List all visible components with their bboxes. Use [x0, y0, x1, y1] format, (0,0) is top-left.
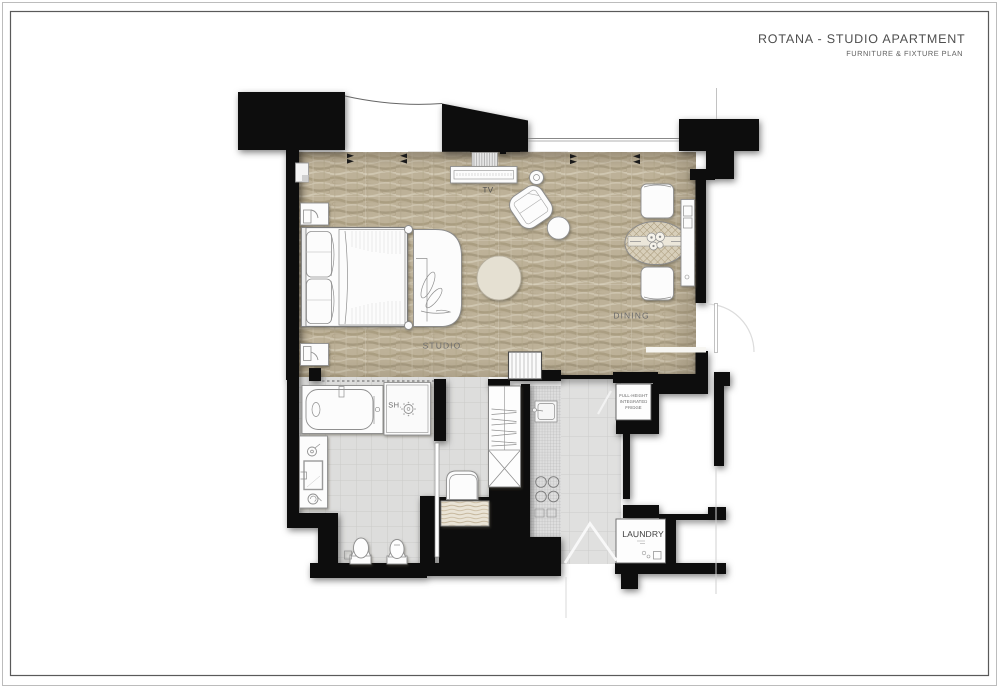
- svg-text:DINING: DINING: [613, 311, 649, 321]
- svg-text:SH.: SH.: [388, 401, 401, 410]
- svg-text:TV: TV: [482, 186, 493, 195]
- svg-text:FURNITURE & FIXTURE PLAN: FURNITURE & FIXTURE PLAN: [846, 49, 963, 58]
- svg-text:LAUNDRY: LAUNDRY: [622, 529, 664, 539]
- svg-text:FRIDGE: FRIDGE: [625, 405, 642, 410]
- svg-text:ROTANA - STUDIO APARTMENT: ROTANA - STUDIO APARTMENT: [758, 32, 966, 46]
- svg-text:FULL-HEIGHT: FULL-HEIGHT: [619, 393, 648, 398]
- svg-text:INTEGRATED: INTEGRATED: [620, 399, 648, 404]
- svg-text:STUDIO: STUDIO: [423, 341, 462, 351]
